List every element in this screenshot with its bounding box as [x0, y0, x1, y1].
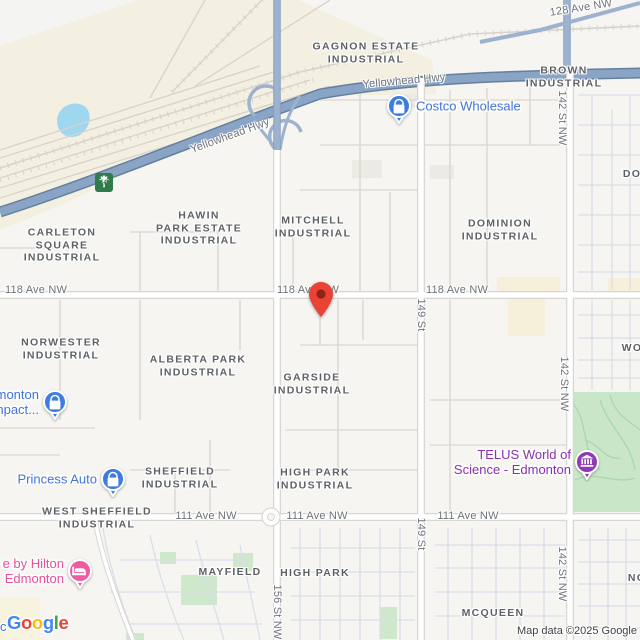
area-label-west-sheffield-industrial: WEST SHEFFIELDINDUSTRIAL	[42, 506, 152, 531]
street-label-149-st: 149 St	[415, 298, 427, 331]
poi-label-costco[interactable]: Costco Wholesale	[416, 99, 521, 114]
poi-pin-telus-science-museum-icon[interactable]	[572, 449, 602, 485]
area-label-hawin-park-estate-industrial: HAWINPARK ESTATEINDUSTRIAL	[156, 209, 242, 247]
area-label-sheffield-industrial: SHEFFIELDINDUSTRIAL	[142, 466, 219, 491]
poi-label-edge-shopping[interactable]: montonnpact...	[0, 387, 39, 417]
label-layer: GAGNON ESTATEINDUSTRIALBROWNINDUSTRIALDO…	[0, 0, 640, 640]
area-label-alberta-park-industrial: ALBERTA PARKINDUSTRIAL	[150, 354, 246, 379]
google-logo-letter: o	[32, 612, 43, 633]
poi-label-telus-science[interactable]: TELUS World ofScience - Edmonton	[454, 447, 571, 477]
street-label-111-ave-nw: 111 Ave NW	[437, 510, 498, 522]
street-label-142-st-nw: 142 St NW	[556, 547, 568, 602]
google-logo-letter: g	[43, 612, 54, 633]
area-label-norwester-industrial: NORWESTERINDUSTRIAL	[21, 337, 101, 362]
street-label-yellowhead-hwy: Yellowhead Hwy	[362, 71, 446, 90]
poi-label-hilton-hotel[interactable]: e by HiltonEdmonton	[3, 556, 64, 586]
street-label-111-ave-nw: 111 Ave NW	[175, 510, 236, 522]
area-label-mitchell-industrial: MITCHELLINDUSTRIAL	[275, 215, 352, 240]
area-label-brown-industrial: BROWNINDUSTRIAL	[526, 65, 603, 90]
area-label-high-park-industrial: HIGH PARKINDUSTRIAL	[277, 467, 354, 492]
area-label-mayfield: MAYFIELD	[198, 566, 261, 579]
poi-pin-princess-auto-shopping-bag-icon[interactable]	[98, 466, 128, 502]
area-label-gagnon-estate-industrial: GAGNON ESTATEINDUSTRIAL	[313, 41, 420, 66]
street-label-128-ave-nw: 128 Ave NW	[549, 0, 613, 19]
street-label-149-st: 149 St	[415, 517, 427, 550]
area-label-wo: WO	[622, 342, 640, 355]
poi-label-princess-auto[interactable]: Princess Auto	[18, 472, 98, 487]
street-label-142-st-nw: 142 St NW	[558, 357, 570, 412]
area-label-mcqueen: MCQUEEN	[462, 607, 525, 620]
google-logo-letter: G	[7, 612, 21, 633]
map-attribution[interactable]: Map data ©2025 Google	[517, 625, 637, 637]
street-label-142-st-nw: 142 St NW	[556, 91, 568, 146]
area-label-dominion-industrial: DOMINIONINDUSTRIAL	[462, 218, 539, 243]
edge-truncated-label: c	[0, 619, 7, 634]
poi-pin-hilton-hotel-bed-icon[interactable]	[65, 558, 95, 594]
google-logo[interactable]: Google	[7, 612, 68, 634]
google-logo-letter: e	[58, 612, 68, 633]
street-label-111-ave-nw: 111 Ave NW	[286, 510, 347, 522]
street-label-118-ave-nw: 118 Ave NW	[5, 284, 67, 296]
map-canvas[interactable]: GAGNON ESTATEINDUSTRIALBROWNINDUSTRIALDO…	[0, 0, 640, 640]
destination-pin[interactable]	[308, 281, 334, 318]
poi-pin-edge-shopping-shopping-bag-icon[interactable]	[40, 389, 70, 425]
area-label-no: NO	[628, 572, 640, 585]
area-label-garside-industrial: GARSIDEINDUSTRIAL	[274, 372, 351, 397]
area-label-high-park: HIGH PARK	[280, 567, 350, 580]
area-label-carleton-square-industrial: CARLETONSQUAREINDUSTRIAL	[24, 226, 101, 264]
highway-16-shield-icon: 16	[95, 173, 113, 192]
street-label-156-st-nw: 156 St NW	[271, 585, 283, 640]
svg-text:16: 16	[99, 178, 109, 188]
google-logo-letter: o	[21, 612, 32, 633]
poi-pin-costco-shopping-bag-icon[interactable]	[384, 93, 414, 129]
street-label-yellowhead-hwy: Yellowhead Hwy	[189, 116, 271, 156]
street-label-118-ave-nw: 118 Ave NW	[426, 284, 488, 296]
area-label-do: DO	[623, 168, 640, 181]
